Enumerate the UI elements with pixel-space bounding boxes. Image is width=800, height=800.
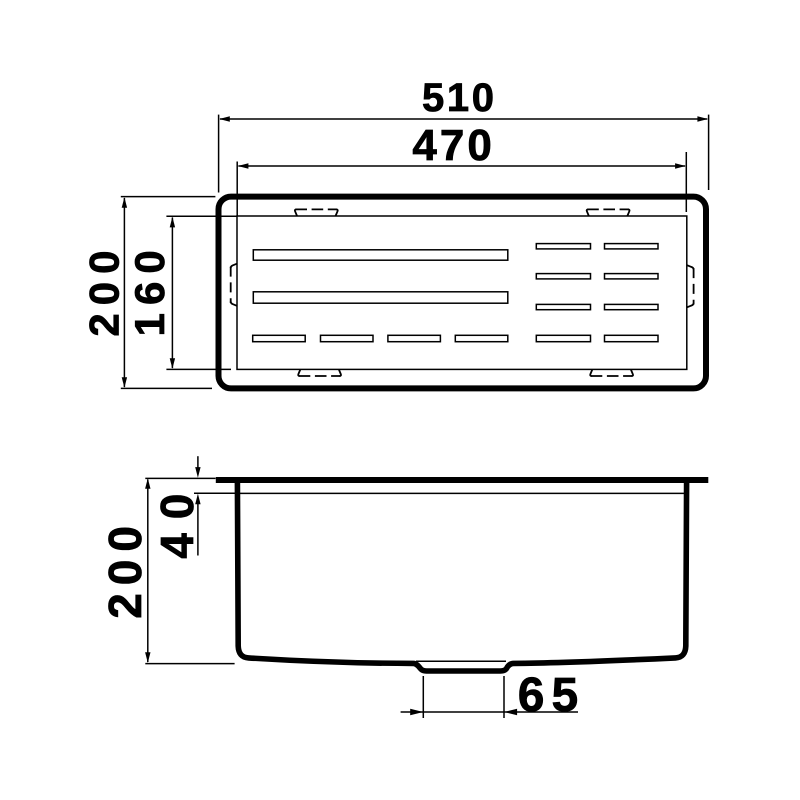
svg-text:200: 200 xyxy=(99,518,151,619)
svg-text:200: 200 xyxy=(80,243,127,337)
svg-text:160: 160 xyxy=(126,242,173,336)
svg-text:510: 510 xyxy=(422,76,497,120)
svg-text:470: 470 xyxy=(412,121,494,170)
svg-text:65: 65 xyxy=(518,669,585,722)
svg-text:40: 40 xyxy=(151,480,203,559)
